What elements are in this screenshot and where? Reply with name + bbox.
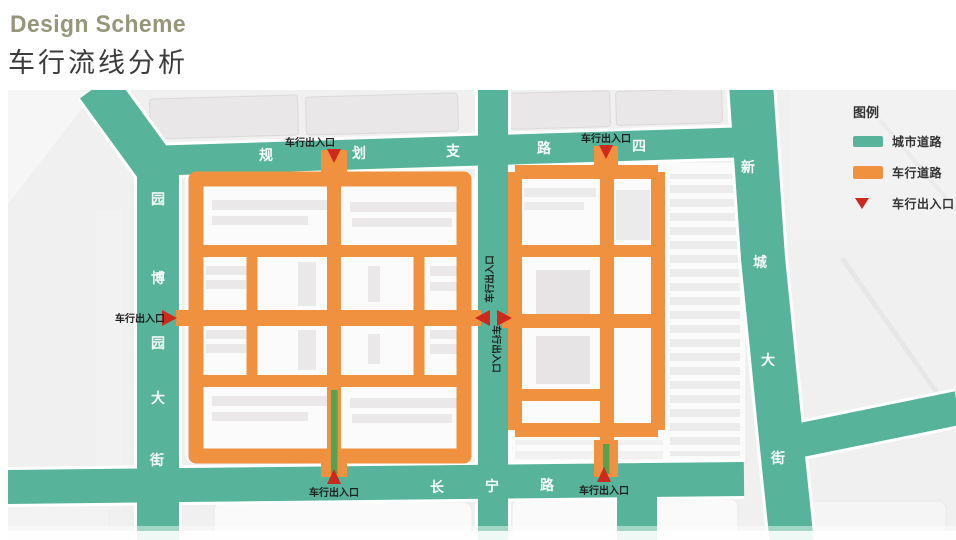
legend-label: 城市道路 — [892, 133, 942, 150]
road-char: 路 — [537, 140, 552, 156]
road-char: 园 — [151, 191, 165, 207]
legend-item-vehicle-entrance: 车行出入口 — [853, 195, 953, 212]
legend-item-vehicle-road: 车行道路 — [853, 164, 953, 181]
entrance-label: 车行出入口 — [115, 312, 165, 325]
road-char: 支 — [445, 143, 461, 159]
road-char: 大 — [761, 352, 775, 368]
eyebrow-title: Design Scheme — [10, 11, 186, 39]
road-char: 四 — [632, 138, 646, 154]
road-char: 园 — [151, 335, 165, 351]
entrance-label: 车行出入口 — [309, 486, 359, 499]
road-char: 城 — [753, 254, 767, 270]
road-char: 街 — [770, 450, 785, 466]
road-char: 宁 — [485, 478, 499, 494]
legend-title: 图例 — [853, 102, 953, 121]
bottom-fade — [8, 531, 956, 540]
entrance-label: 车行出入口 — [484, 255, 496, 303]
entrance-arrow-swatch-icon — [853, 197, 883, 210]
city-road-swatch-icon — [853, 136, 883, 147]
road-char: 博 — [151, 270, 165, 286]
road-char: 路 — [540, 477, 555, 493]
slide: Design Scheme 车行流线分析 — [0, 0, 956, 540]
entrance-label: 车行出入口 — [490, 325, 502, 373]
road-char: 大 — [151, 390, 165, 406]
road-char: 长 — [430, 479, 445, 495]
legend-label: 车行出入口 — [892, 195, 955, 212]
entrance-label: 车行出入口 — [581, 132, 631, 145]
entrance-label: 车行出入口 — [285, 136, 335, 149]
legend-item-city-road: 城市道路 — [853, 133, 953, 150]
legend: 图例 城市道路 车行道路 车行出入口 — [853, 102, 953, 226]
map-area: 规 划 支 路 四 园 博 园 大 街 新 城 大 街 长 宁 路 — [8, 90, 956, 540]
legend-label: 车行道路 — [892, 164, 942, 181]
road-char: 新 — [741, 159, 755, 175]
site-plan-map: 规 划 支 路 四 园 博 园 大 街 新 城 大 街 长 宁 路 — [8, 90, 956, 540]
road-char: 规 — [259, 147, 273, 163]
road-char: 划 — [352, 145, 366, 161]
page-title: 车行流线分析 — [8, 41, 188, 80]
road-changning — [8, 479, 744, 487]
entrance-label: 车行出入口 — [579, 484, 629, 497]
road-char: 街 — [149, 452, 164, 468]
vehicle-road-swatch-icon — [853, 166, 883, 179]
